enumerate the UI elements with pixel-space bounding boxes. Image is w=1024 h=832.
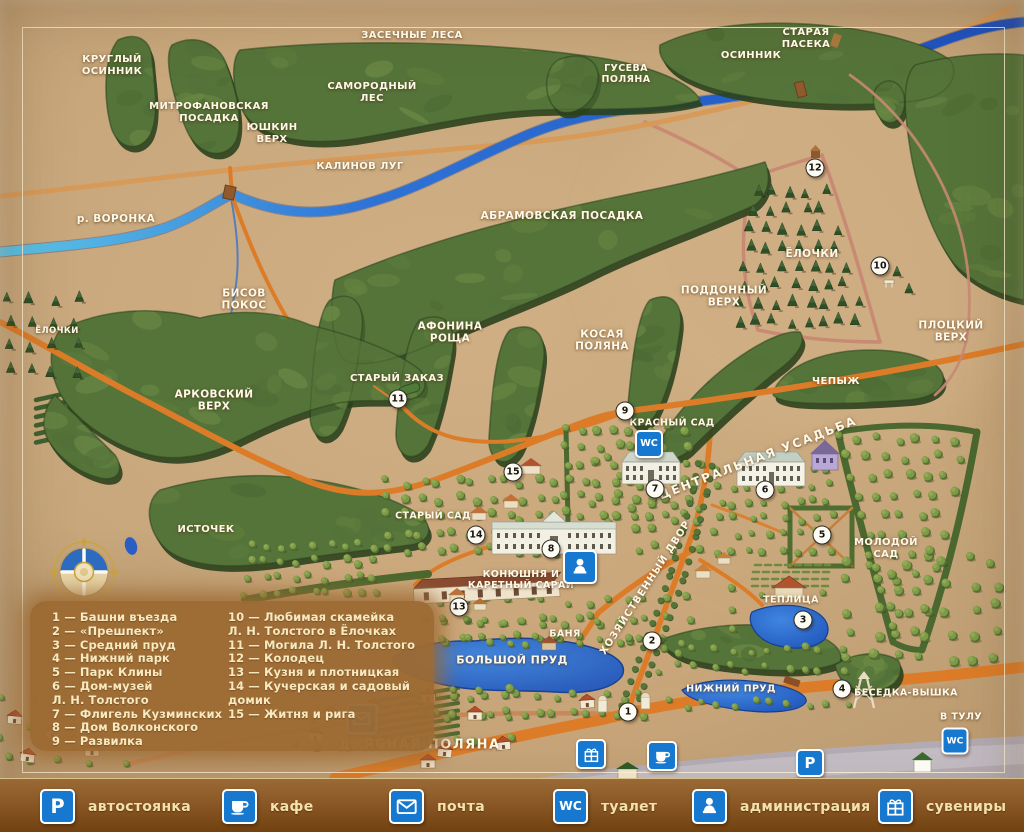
map-label-poddonny-verkh: ПОДДОННЫЙ ВЕРХ xyxy=(681,285,767,310)
map-label-nizhny-prud: НИЖНИЙ ПРУД xyxy=(686,683,776,694)
map-label-bolshoy-prud: БОЛЬШОЙ ПРУД xyxy=(456,655,568,668)
wc-icon-map-0: WC xyxy=(635,430,663,458)
map-label-stary-sad: СТАРЫЙ САД xyxy=(395,510,471,521)
legend-line: 1 — Башни въезда xyxy=(52,611,222,625)
map-label-istochek: ИСТОЧЕК xyxy=(178,524,235,536)
parking-icon-bar: P xyxy=(40,789,75,824)
map-label-chepyzh: ЧЕПЫЖ xyxy=(812,376,860,388)
wc-icon-bar: WC xyxy=(553,789,588,824)
map-label-samorodny-les: САМОРОДНЫЙ ЛЕС xyxy=(327,81,416,105)
wc-glyph: WC xyxy=(559,800,582,812)
legend-line: 10 — Любимая скамейка xyxy=(228,611,415,625)
map-label-afonina-roshcha: АФОНИНА РОЩА xyxy=(418,321,483,346)
map-marker-5: 5 xyxy=(813,526,832,545)
map-marker-1: 1 xyxy=(619,703,638,722)
legend-line: 5 — Парк Клины xyxy=(52,666,222,680)
legend-line: 9 — Развилка xyxy=(52,735,222,749)
legend-line: 14 — Кучерская и садовый xyxy=(228,680,415,694)
wc-glyph: WC xyxy=(640,439,658,449)
map-marker-6: 6 xyxy=(756,481,775,500)
admin-icon-bar xyxy=(692,789,727,824)
legend-bar-item-parking: Pавтостоянка xyxy=(40,789,191,824)
legend-line: 7 — Флигель Кузминских xyxy=(52,708,222,722)
legend-bar: PавтостоянкакафепочтаWCтуалетадминистрац… xyxy=(0,778,1024,832)
map-marker-12: 12 xyxy=(806,159,825,178)
map-marker-11: 11 xyxy=(389,390,408,409)
legend-line: 3 — Средний пруд xyxy=(52,639,222,653)
legend-line: 12 — Колодец xyxy=(228,652,415,666)
legend-bar-label: кафе xyxy=(270,799,314,815)
legend-bar-item-post: почта xyxy=(389,789,485,824)
map-marker-14: 14 xyxy=(467,526,486,545)
map-label-bisov-pokos: БИСОВ ПОКОС xyxy=(222,288,267,313)
legend-line: 4 — Нижний парк xyxy=(52,652,222,666)
map-label-abramovskaya-posadka: АБРАМОВСКАЯ ПОСАДКА xyxy=(481,210,644,222)
map-marker-7: 7 xyxy=(646,480,665,499)
legend-line: домик xyxy=(228,694,415,708)
map-label-yushkin-verkh: ЮШКИН ВЕРХ xyxy=(246,122,297,146)
map-label-krugly-osinnik: КРУГЛЫЙ ОСИННИК xyxy=(82,54,142,78)
legend-bar-item-cafe: кафе xyxy=(222,789,314,824)
map-label-plotsky-verkh: ПЛОЦКИЙ ВЕРХ xyxy=(918,320,983,345)
parking-glyph: P xyxy=(50,797,64,816)
purple-building xyxy=(810,440,840,470)
map-label-besedka-vyshka: БЕСЕДКА-ВЫШКА xyxy=(854,687,958,698)
map-label-zasechnye-lesa: ЗАСЕЧНЫЕ ЛЕСА xyxy=(361,30,463,42)
legend-column-2: 10 — Любимая скамейкаЛ. Н. Толстого в Ёл… xyxy=(228,611,415,721)
map-marker-8: 8 xyxy=(542,540,561,559)
legend-bar-label: почта xyxy=(437,799,485,815)
legend-line: 2 — «Прешпект» xyxy=(52,625,222,639)
map-label-yolochki: ЁЛОЧКИ xyxy=(785,248,838,260)
legend-column-1: 1 — Башни въезда2 — «Прешпект»3 — Средни… xyxy=(52,611,222,749)
legend-line: 8 — Дом Волконского xyxy=(52,721,222,735)
legend-panel: 1 — Башни въезда2 — «Прешпект»3 — Средни… xyxy=(30,601,434,751)
legend-line: Л. Н. Толстого xyxy=(52,694,222,708)
legend-bar-item-admin: администрация xyxy=(692,789,870,824)
gift-icon-bar xyxy=(878,789,913,824)
map-label-kalinov-lug: КАЛИНОВ ЛУГ xyxy=(316,161,403,173)
wc-glyph: WC xyxy=(947,736,964,745)
map-label-teplitsa: ТЕПЛИЦА xyxy=(763,594,819,605)
map-marker-3: 3 xyxy=(794,611,813,630)
wc-icon-map-6: WC xyxy=(942,728,969,755)
map-label-yolochki-left: ЁЛОЧКИ xyxy=(35,326,78,336)
parking-glyph: P xyxy=(805,756,816,771)
gift-icon-map-3 xyxy=(576,739,606,769)
legend-bar-label: сувениры xyxy=(926,799,1006,815)
legend-bar-label: автостоянка xyxy=(88,799,191,815)
map-label-v-tulu: В ТУЛУ xyxy=(940,711,982,722)
cafe-icon-map-4 xyxy=(647,741,677,771)
legend-line: 13 — Кузня и плотницкая xyxy=(228,666,415,680)
map-marker-2: 2 xyxy=(643,632,662,651)
map-label-krasny-sad: КРАСНЫЙ САД xyxy=(629,417,714,428)
legend-bar-item-wc: WCтуалет xyxy=(553,789,657,824)
cafe-icon-bar xyxy=(222,789,257,824)
legend-line: 11 — Могила Л. Н. Толстого xyxy=(228,639,415,653)
map-label-kosaya-polyana: КОСАЯ ПОЛЯНА xyxy=(575,329,629,354)
map-label-stary-zakaz: СТАРЫЙ ЗАКАЗ xyxy=(350,373,444,385)
map-label-staraya-paseka: СТАРАЯ ПАСЕКА xyxy=(782,27,831,51)
map-label-osinnik: ОСИННИК xyxy=(721,50,781,62)
map-label-guseva-polyana: ГУСЕВА ПОЛЯНА xyxy=(602,63,651,85)
map-label-molodoy-sad: МОЛОДОЙ САД xyxy=(854,537,918,561)
map-label-banya: БАНЯ xyxy=(549,628,580,639)
map-label-konyushnya: КОНЮШНЯ И КАРЕТНЫЙ САРАЙ xyxy=(468,569,574,591)
estate-map-board: КРУГЛЫЙ ОСИННИКЗАСЕЧНЫЕ ЛЕСАСАМОРОДНЫЙ Л… xyxy=(0,0,1024,832)
parking-icon-map-5: P xyxy=(796,749,824,777)
map-label-arkovsky-verkh: АРКОВСКИЙ ВЕРХ xyxy=(175,389,254,414)
map-marker-10: 10 xyxy=(871,257,890,276)
kiosk xyxy=(616,762,639,779)
post-icon-bar xyxy=(389,789,424,824)
legend-line: 6 — Дом-музей xyxy=(52,680,222,694)
map-marker-15: 15 xyxy=(504,463,523,482)
admin-icon-map-1 xyxy=(563,550,597,584)
map-marker-4: 4 xyxy=(833,680,852,699)
legend-bar-item-gift: сувениры xyxy=(878,789,1006,824)
legend-line: Л. Н. Толстого в Ёлочках xyxy=(228,625,415,639)
map-label-r-voronka: р. ВОРОНКА xyxy=(77,213,155,225)
legend-bar-label: администрация xyxy=(740,799,870,815)
legend-bar-label: туалет xyxy=(601,799,657,815)
map-marker-13: 13 xyxy=(450,598,469,617)
map-marker-9: 9 xyxy=(616,402,635,421)
legend-line: 15 — Житня и рига xyxy=(228,708,415,722)
